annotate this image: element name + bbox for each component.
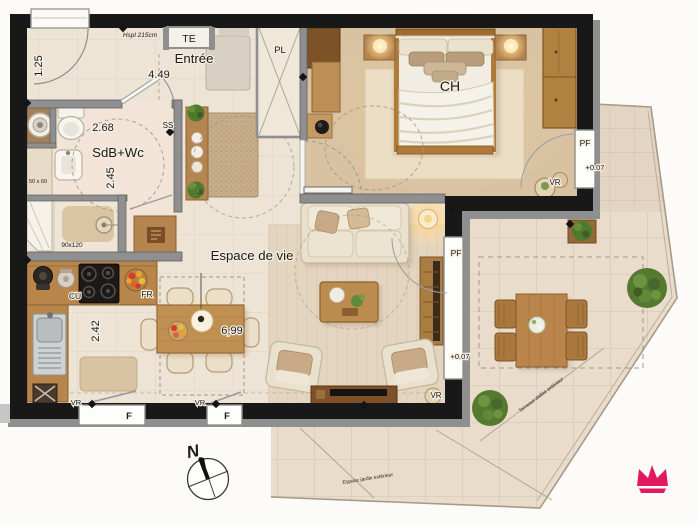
svg-text:2.42: 2.42 (90, 320, 102, 341)
svg-text:VR: VR (430, 391, 441, 400)
svg-text:SdB+Wc: SdB+Wc (92, 145, 144, 160)
svg-text:+0.07: +0.07 (451, 352, 470, 361)
svg-text:90x120: 90x120 (61, 242, 83, 249)
svg-text:Espace de vie: Espace de vie (211, 248, 294, 263)
svg-text:VR: VR (195, 398, 206, 407)
svg-text:+0.07: +0.07 (586, 163, 605, 172)
svg-text:F: F (126, 411, 132, 422)
svg-text:4.49: 4.49 (148, 69, 169, 81)
svg-text:PF: PF (580, 138, 591, 148)
svg-text:6,99: 6,99 (221, 325, 242, 337)
svg-text:FR: FR (141, 289, 152, 299)
svg-text:VR: VR (549, 178, 560, 187)
svg-text:VR: VR (71, 398, 82, 407)
svg-text:1.25: 1.25 (33, 55, 45, 76)
svg-text:Entrée: Entrée (175, 51, 214, 66)
svg-text:2.68: 2.68 (92, 122, 113, 134)
svg-text:Hspl 215cm: Hspl 215cm (123, 32, 158, 39)
svg-text:PL: PL (274, 45, 286, 56)
svg-text:50 x 60: 50 x 60 (29, 179, 47, 185)
svg-text:CH: CH (440, 78, 460, 94)
svg-text:TE: TE (182, 33, 195, 45)
svg-text:SS: SS (163, 121, 174, 130)
svg-text:PF: PF (451, 248, 462, 258)
svg-text:F: F (224, 411, 230, 422)
svg-text:CU: CU (69, 291, 81, 301)
svg-text:2.45: 2.45 (105, 167, 117, 188)
